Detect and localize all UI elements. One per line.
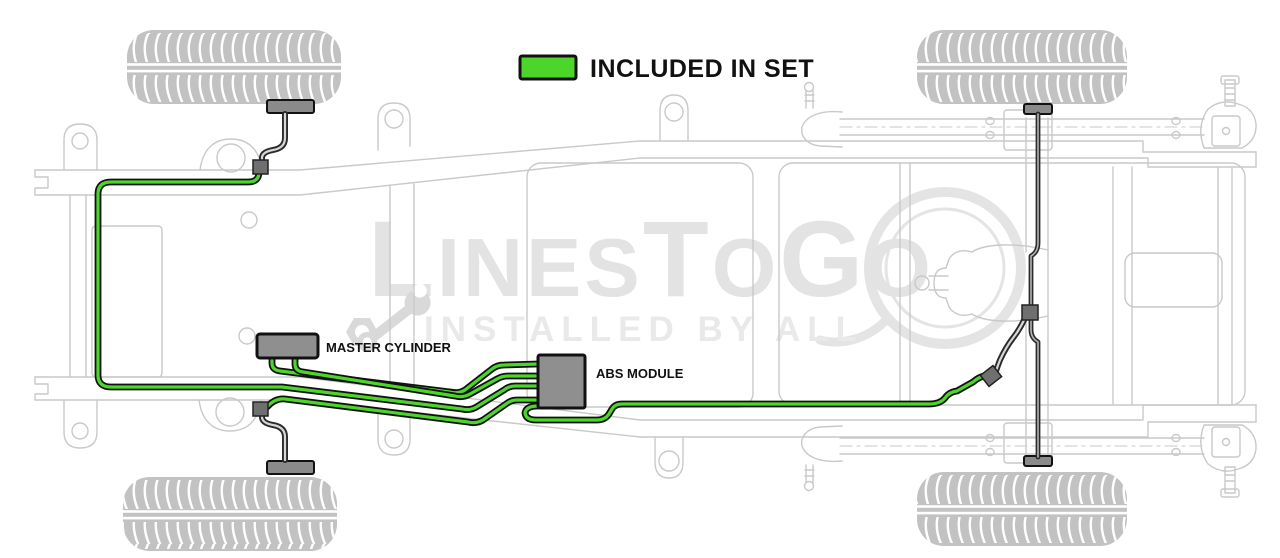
rear-axle-line-up	[1031, 114, 1038, 305]
legend-swatch	[520, 56, 576, 79]
rear-crossmember-box	[1125, 253, 1222, 307]
brand-part: G	[779, 198, 866, 319]
brake-hose-front-left	[262, 114, 285, 163]
tire-front-right	[123, 477, 337, 551]
tire-front-left	[127, 30, 341, 104]
legend: INCLUDED IN SET	[520, 55, 814, 83]
brake-hose-front-right	[262, 412, 285, 460]
brand-watermark: LINESTOGO	[368, 198, 934, 319]
tire-rear-left	[917, 30, 1127, 104]
connector-front-right	[253, 402, 268, 416]
brake-caliper-front-left	[267, 100, 314, 113]
connector-front-left	[253, 160, 268, 174]
tee-junction-rear-axle	[1022, 305, 1038, 320]
master-cylinder-label: MASTER CYLINDER	[326, 340, 452, 355]
abs-module	[538, 355, 585, 408]
diagram-canvas: LINESTOGO INSTALLED BY ALL	[0, 0, 1280, 558]
brake-line-diagram: LINESTOGO INSTALLED BY ALL	[0, 0, 1280, 558]
brake-line-rear	[525, 376, 984, 420]
legend-label: INCLUDED IN SET	[590, 55, 814, 83]
master-cylinder	[257, 334, 318, 358]
brake-caliper-front-right	[267, 461, 314, 474]
brand-part: O	[712, 221, 780, 314]
abs-module-label: ABS MODULE	[596, 366, 684, 381]
brand-part: T	[643, 198, 712, 319]
brand-part: INES	[437, 221, 643, 314]
tire-rear-right	[917, 472, 1127, 546]
watermark-tagline: INSTALLED BY ALL	[424, 310, 864, 349]
watermark-layer: LINESTOGO INSTALLED BY ALL	[346, 192, 1021, 358]
